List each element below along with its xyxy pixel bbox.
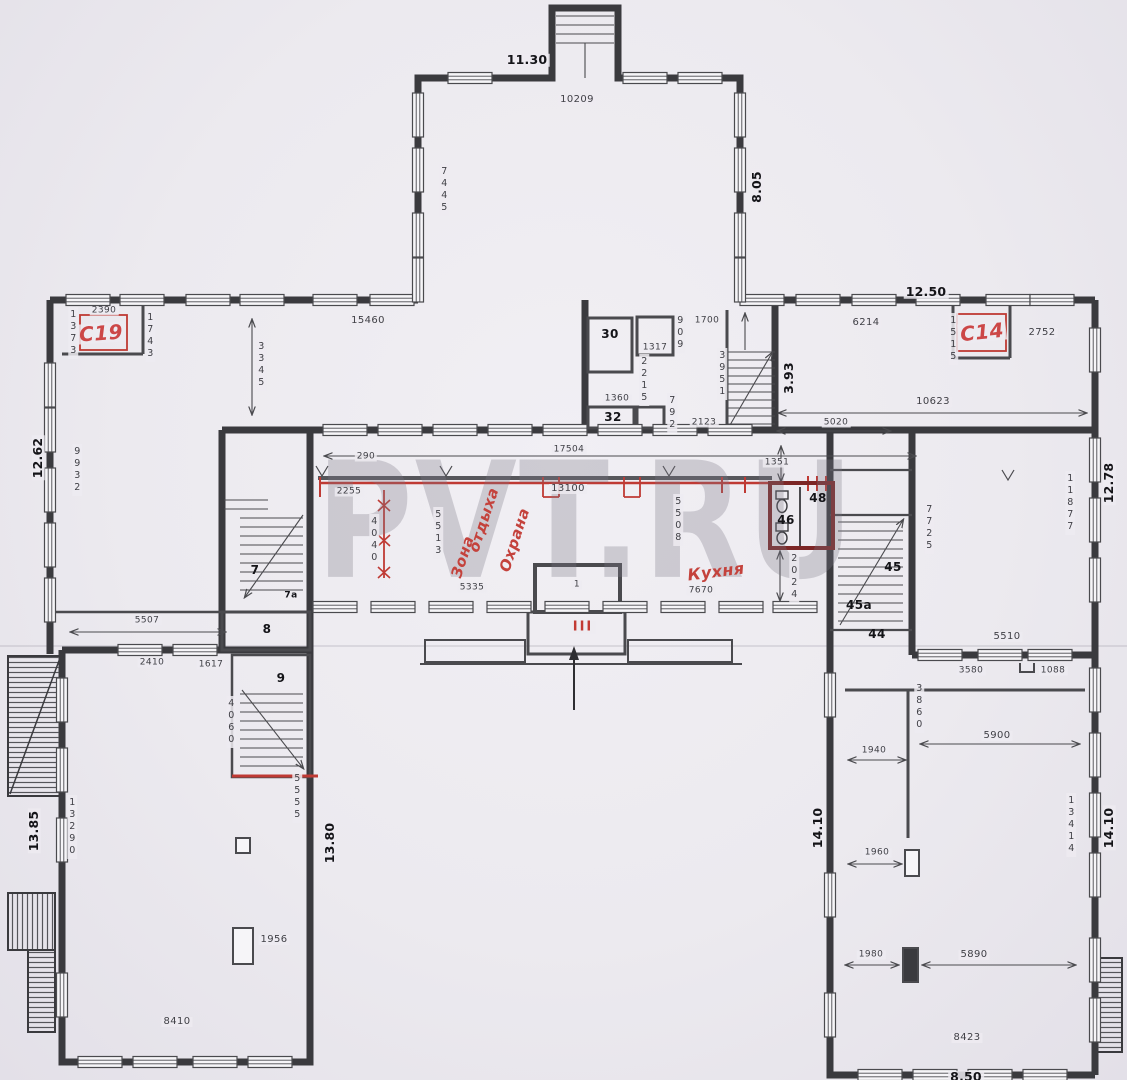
dim-17504: 17504	[552, 446, 587, 455]
dim-3580: 3580	[957, 667, 986, 676]
dim-12-50: 12.50	[904, 286, 949, 299]
dim-1960: 1960	[863, 849, 892, 858]
dim-1373: 1373	[68, 307, 78, 359]
door-mark	[1002, 470, 1014, 480]
room-label-8: 8	[261, 623, 274, 635]
dim-13414: 13414	[1066, 793, 1076, 857]
dim-2410: 2410	[138, 659, 167, 668]
room-label-9: 9	[275, 672, 288, 684]
dim-290: 290	[355, 453, 377, 462]
dim-5508: 5508	[673, 494, 683, 546]
dim-5513: 5513	[433, 507, 443, 559]
dim-4060: 4060	[226, 696, 236, 748]
dim-8410: 8410	[161, 1017, 192, 1027]
dim-1360: 1360	[603, 395, 632, 404]
dim-1980: 1980	[857, 951, 886, 960]
dim-12-78: 12.78	[1103, 461, 1116, 506]
right-wing-partitions	[845, 690, 1085, 838]
room-label-44: 44	[866, 628, 888, 640]
dim-5335: 5335	[458, 584, 487, 593]
dim-14-10-right: 14.10	[1103, 806, 1116, 851]
dim-13100: 13100	[549, 484, 587, 494]
tower-stair-treads	[556, 16, 614, 78]
room-label-7a: 7а	[282, 592, 299, 601]
dim-8423: 8423	[951, 1033, 982, 1043]
annotation-c19: С19	[77, 321, 126, 344]
right-wing-outline	[830, 650, 1095, 1075]
dim-2123: 2123	[690, 419, 719, 428]
external-stair-left-upper	[8, 656, 60, 796]
dim-2390: 2390	[90, 307, 119, 316]
dim-5890: 5890	[958, 950, 989, 960]
dim-5900: 5900	[981, 731, 1012, 741]
dim-13-80: 13.80	[324, 821, 337, 866]
external-stair-left-lower-landing	[8, 893, 55, 950]
dim-2215: 2215	[639, 354, 649, 406]
dim-8-05: 8.05	[751, 169, 764, 205]
dim-3951: 3951	[717, 348, 727, 400]
room-label-45a: 45а	[844, 599, 874, 611]
external-stair-left-lower	[28, 950, 55, 1032]
dim-11877: 11877	[1065, 471, 1075, 535]
duct-mark	[1020, 663, 1034, 672]
porch-step-right	[628, 640, 732, 662]
room-label-1: 1	[572, 581, 582, 590]
dim-1956: 1956	[258, 935, 289, 945]
dim-12-62: 12.62	[32, 436, 45, 481]
band-stair-run	[730, 353, 772, 425]
band-inner-walls	[585, 300, 1095, 430]
dim-792: 792	[667, 393, 677, 433]
dim-3345: 3345	[256, 339, 266, 391]
dim-5507: 5507	[133, 617, 162, 626]
room-label-7: 7	[249, 564, 262, 576]
annotation-c14: С14	[957, 320, 1007, 345]
dim-3-93: 3.93	[783, 360, 796, 396]
dim-4040: 4040	[369, 514, 379, 566]
column-small-left	[236, 838, 250, 853]
column-1980	[903, 948, 918, 982]
dim-2255: 2255	[335, 488, 364, 497]
dim-10623: 10623	[914, 397, 952, 407]
top-wing-outline	[418, 8, 740, 300]
room-label-30: 30	[599, 328, 621, 340]
dim-7670: 7670	[687, 587, 716, 596]
dim-15460: 15460	[349, 316, 387, 326]
room-label-45: 45	[882, 561, 904, 573]
dim-7725: 7725	[924, 502, 934, 554]
dim-10209: 10209	[558, 95, 596, 105]
dim-3860: 3860	[914, 681, 924, 733]
dim-2752: 2752	[1026, 328, 1057, 338]
column-1960	[905, 850, 919, 876]
stair-7-treads	[224, 500, 303, 590]
entrance-arrow	[569, 646, 579, 710]
dim-1351: 1351	[763, 459, 792, 468]
porch-step-left	[425, 640, 525, 662]
dim-1317: 1317	[641, 344, 670, 353]
dim-5555: 5555	[292, 771, 302, 823]
dim-1940: 1940	[860, 747, 889, 756]
dim-7445: 7445	[439, 164, 449, 216]
dim-1515: 1515	[948, 313, 958, 365]
room-label-32: 32	[602, 411, 624, 423]
dim-6214: 6214	[850, 318, 881, 328]
dim-1700: 1700	[693, 317, 722, 326]
dim-2024: 2024	[789, 551, 799, 603]
room-label-46: 46	[775, 514, 797, 526]
dim-1088: 1088	[1039, 667, 1068, 676]
external-stairs	[8, 656, 1122, 1052]
room-label-48: 48	[807, 492, 829, 504]
dim-9932: 9932	[72, 444, 82, 496]
scanned-floor-plan: PVT.RU 11.30 10209 7445 8.05 2390 С19 13…	[0, 0, 1127, 1080]
dim-1743: 1743	[145, 310, 155, 362]
dim-8-50: 8.50	[948, 1071, 984, 1080]
dim-1617: 1617	[197, 661, 226, 670]
room-9-walls	[232, 655, 310, 777]
entrance-mark-III: III	[571, 621, 596, 634]
stair-9-run	[242, 690, 303, 768]
column-1956	[233, 928, 253, 964]
dim-14-10-left: 14.10	[812, 806, 825, 851]
dim-11-30: 11.30	[505, 54, 550, 67]
dim-909: 909	[675, 313, 685, 353]
dim-5510: 5510	[991, 632, 1022, 642]
dim-13290: 13290	[67, 795, 77, 859]
dim-5020: 5020	[822, 419, 851, 428]
dim-13-85: 13.85	[28, 809, 41, 854]
